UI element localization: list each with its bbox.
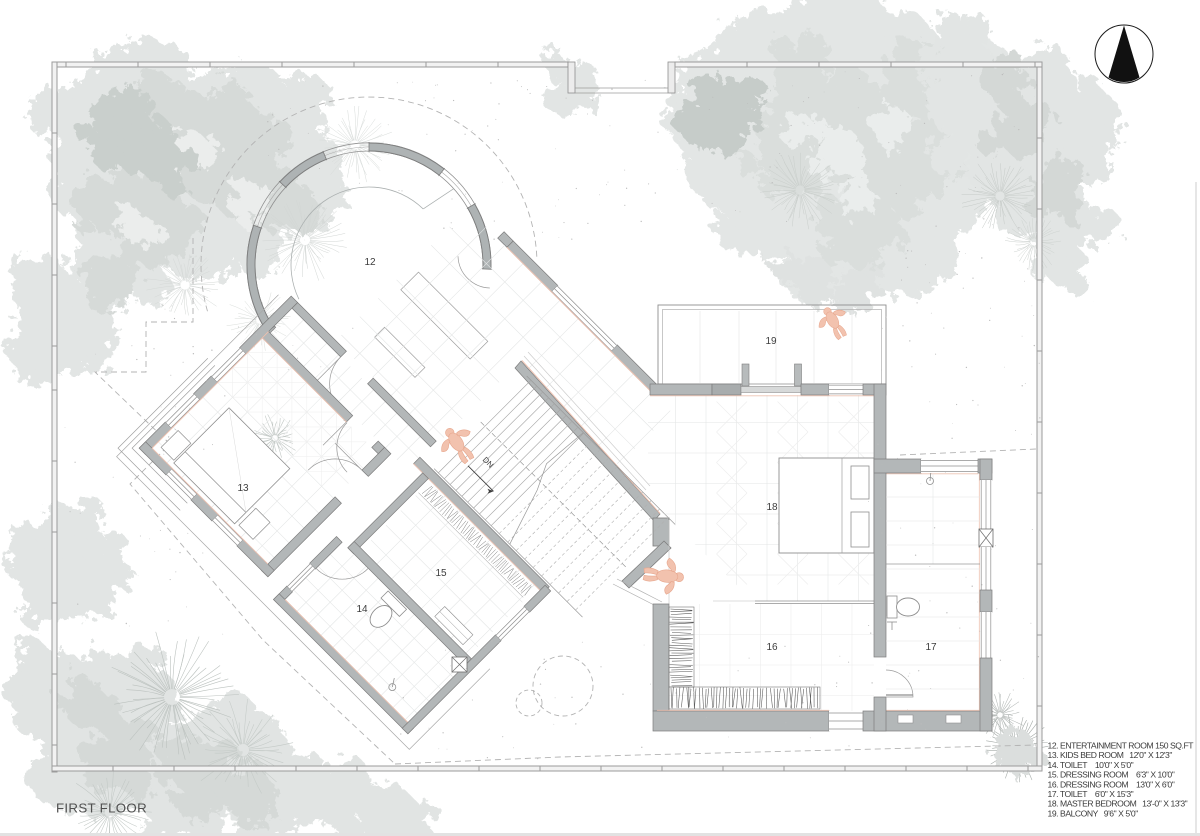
svg-text:12. ENTERTAINMENT ROOM 150 SQ.: 12. ENTERTAINMENT ROOM 150 SQ.FT — [1048, 741, 1195, 751]
svg-text:15. DRESSING ROOM 6'3" X 10: 15. DRESSING ROOM 6'3" X 10'0" — [1048, 770, 1175, 780]
svg-text:16: 16 — [766, 642, 778, 653]
svg-text:13. KIDS BED ROOM 12'0" X 12: 13. KIDS BED ROOM 12'0" X 12'3" — [1048, 750, 1173, 760]
svg-text:17. TOILET 6'0" X 15'3": 17. TOILET 6'0" X 15'3" — [1048, 789, 1134, 799]
svg-text:12: 12 — [364, 257, 376, 268]
svg-text:15: 15 — [435, 568, 447, 579]
svg-text:18: 18 — [766, 502, 778, 513]
svg-text:19. BALCONY 9'6" X 5'0": 19. BALCONY 9'6" X 5'0" — [1048, 808, 1139, 818]
svg-text:14: 14 — [356, 604, 368, 615]
svg-text:14. TOILET 10'0" X 5'0": 14. TOILET 10'0" X 5'0" — [1048, 760, 1134, 770]
svg-text:17: 17 — [925, 642, 937, 653]
svg-text:19: 19 — [765, 336, 777, 347]
svg-text:18. MASTER BEDROOM 13'-0" X: 18. MASTER BEDROOM 13'-0" X 13'3" — [1048, 799, 1188, 809]
svg-text:16. DRESSING ROOM 13'0" X 6: 16. DRESSING ROOM 13'0" X 6'0" — [1048, 779, 1175, 789]
svg-text:FIRST FLOOR: FIRST FLOOR — [56, 801, 147, 816]
svg-text:13: 13 — [237, 483, 249, 494]
